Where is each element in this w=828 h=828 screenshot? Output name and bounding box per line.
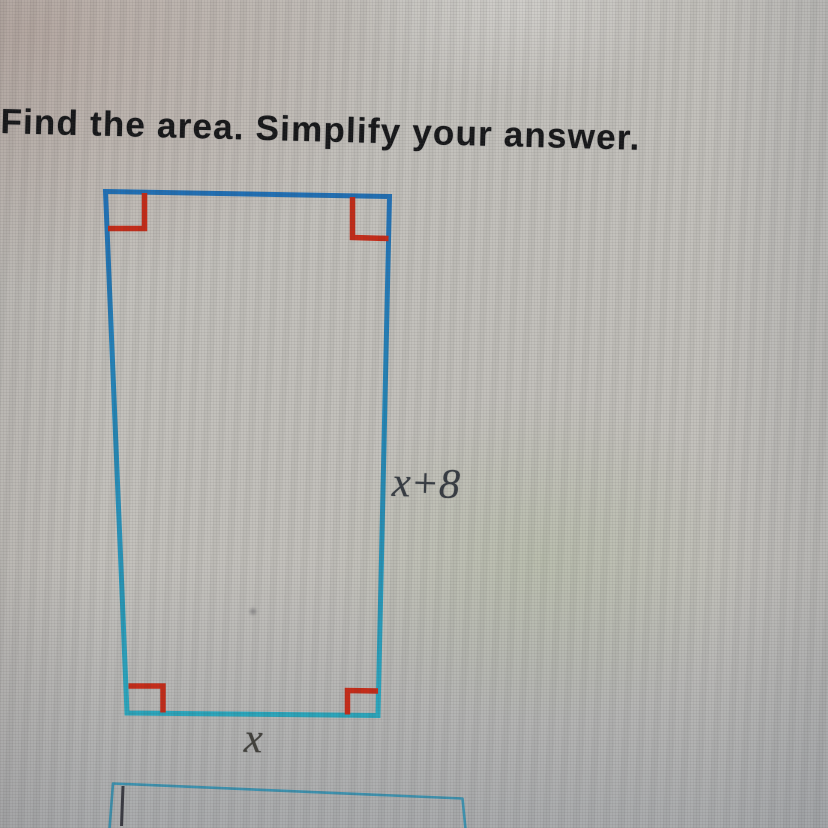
right-angle-marker-top-left <box>108 193 145 229</box>
right-angle-marker-bottom-right <box>348 691 379 715</box>
height-label: x+8 <box>391 462 460 506</box>
width-label: x <box>243 718 263 761</box>
right-angle-marker-bottom-left <box>129 686 164 713</box>
right-angle-marker-top-right <box>353 197 389 239</box>
math-problem-page: Find the area. Simplify your answer. x+8… <box>0 0 828 828</box>
rectangle-outline <box>106 192 390 716</box>
